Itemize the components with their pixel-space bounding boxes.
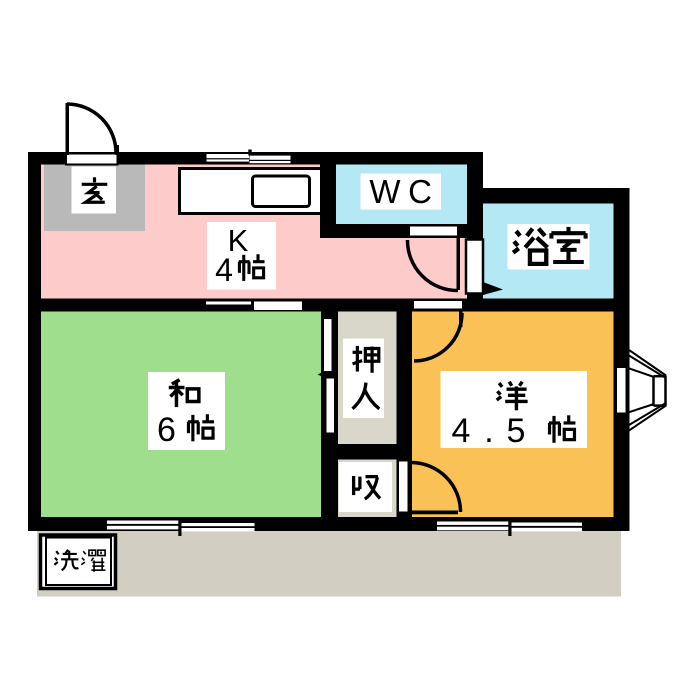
svg-text:5: 5 <box>507 412 526 450</box>
svg-text:4: 4 <box>215 252 233 288</box>
svg-text:4: 4 <box>452 412 471 450</box>
svg-text:W: W <box>369 173 401 210</box>
svg-text:6: 6 <box>157 411 176 449</box>
svg-text:.: . <box>484 412 493 450</box>
svg-text:C: C <box>408 173 432 210</box>
